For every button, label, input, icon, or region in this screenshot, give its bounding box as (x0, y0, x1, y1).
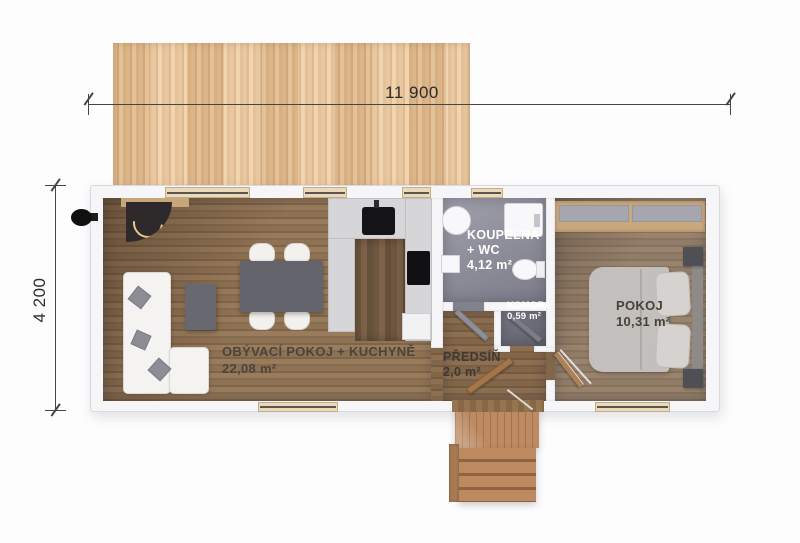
porch-rail (449, 444, 459, 502)
room-label-living: OBÝVACÍ POKOJ + KUCHYNĚ 22,08 m² (222, 343, 452, 377)
dimension-label-height: 4 200 (12, 268, 68, 332)
dining-chair (284, 243, 310, 262)
bedroom-door-opening (546, 348, 555, 380)
faucet (374, 200, 379, 208)
room-name: KOMORA (507, 301, 555, 312)
wardrobe-door (559, 205, 629, 222)
window (402, 187, 431, 198)
dimension-label-width: 11 900 (336, 83, 488, 103)
interior-wall (443, 302, 453, 311)
dimension-line-top (88, 104, 731, 105)
sofa-chaise (169, 347, 209, 394)
washbasin (441, 255, 460, 273)
bathtub-fixture (534, 214, 540, 227)
room-name: KOUPELNA + WC (467, 228, 547, 258)
room-area: 2,0 m² (443, 365, 513, 380)
room-area: 10,31 m² (616, 314, 700, 330)
room-area: 4,12 m² (467, 258, 547, 273)
room-name: OBÝVACÍ POKOJ + KUCHYNĚ (222, 343, 452, 360)
coffee-table (185, 284, 216, 330)
dishwasher (402, 313, 431, 340)
dining-table (240, 261, 323, 312)
room-area: 0,59 m² (507, 312, 555, 323)
kitchen-floor (355, 239, 405, 341)
room-area: 22,08 m² (222, 360, 452, 377)
dimension-extension (88, 94, 89, 115)
terrace-deck (113, 43, 470, 191)
kitchen-sink (362, 207, 395, 235)
wardrobe-door (632, 205, 702, 222)
window-bedroom (595, 402, 670, 412)
interior-wall (546, 380, 555, 401)
nightstand (683, 369, 703, 388)
floor-plan: 11 900 4 200 (0, 0, 800, 543)
dining-chair (249, 243, 275, 262)
chimney-vent (71, 209, 92, 226)
room-label-pantry: KOMORA 0,59 m² (507, 301, 555, 322)
dimension-extension (730, 94, 731, 115)
room-label-hallway: PŘEDSÍŇ 2,0 m² (443, 350, 513, 380)
window (303, 187, 347, 198)
cooktop (407, 251, 430, 285)
interior-wall (494, 311, 501, 346)
entry-steps (458, 448, 536, 502)
room-name: PŘEDSÍŇ (443, 350, 513, 365)
room-name: POKOJ (616, 298, 700, 314)
window-terrace-door (165, 187, 250, 198)
dining-chair (284, 311, 310, 330)
room-label-bedroom: POKOJ 10,31 m² (616, 298, 700, 330)
nightstand (683, 247, 703, 266)
dimension-extension (45, 410, 66, 411)
window-living (258, 402, 338, 412)
dining-chair (249, 311, 275, 330)
room-label-bathroom: KOUPELNA + WC 4,12 m² (467, 228, 547, 273)
interior-wall (546, 198, 555, 348)
window-bathroom (471, 188, 503, 198)
dimension-extension (45, 185, 66, 186)
